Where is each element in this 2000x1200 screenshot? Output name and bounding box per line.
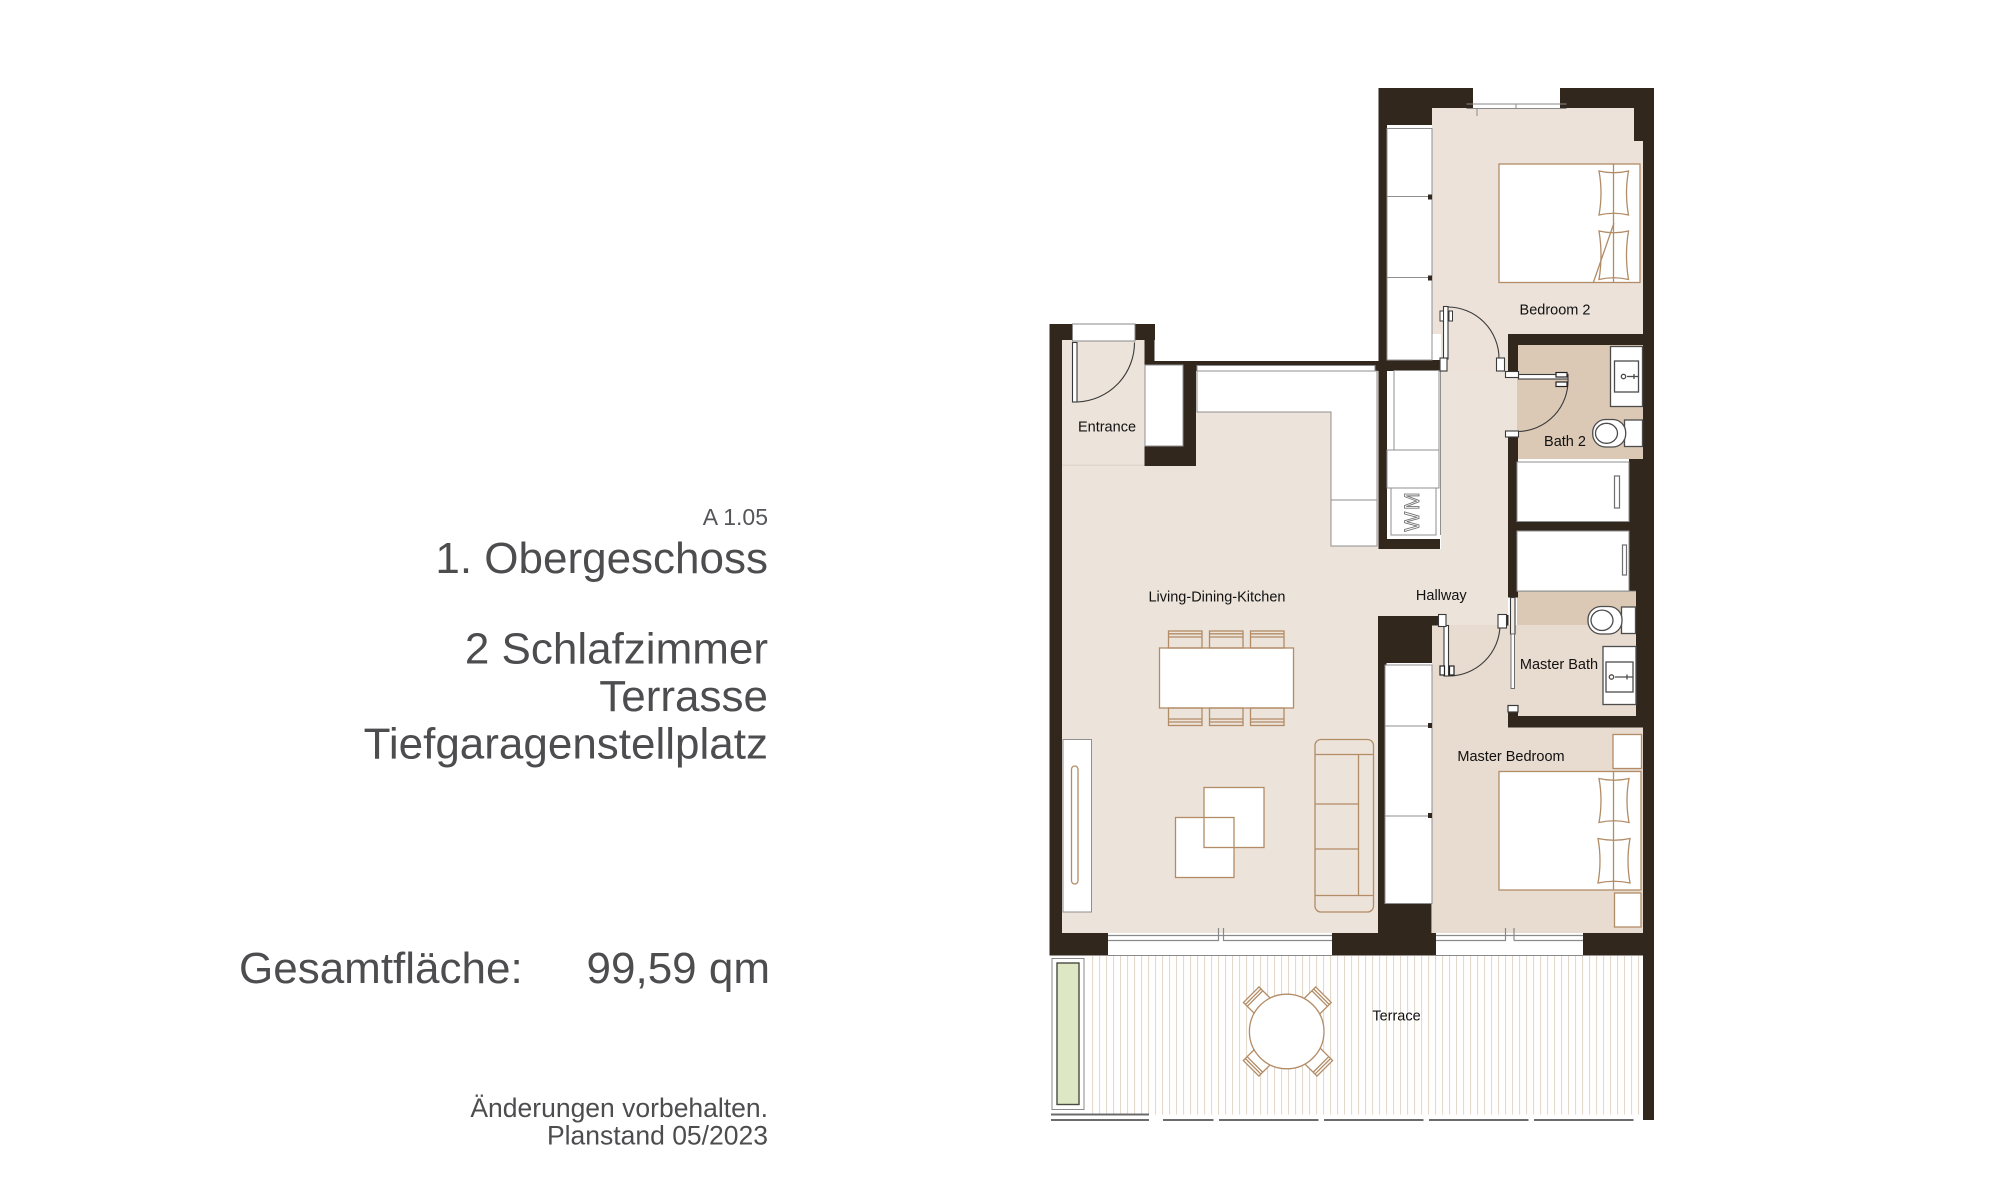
svg-text:Gesamtfläche:: Gesamtfläche: <box>239 944 523 993</box>
svg-text:Hallway: Hallway <box>1416 588 1468 604</box>
svg-text:WM: WM <box>1401 490 1424 531</box>
svg-text:2 Schlafzimmer: 2 Schlafzimmer <box>465 625 768 674</box>
svg-text:Tiefgaragenstellplatz: Tiefgaragenstellplatz <box>364 720 768 769</box>
svg-text:Master Bedroom: Master Bedroom <box>1457 749 1564 765</box>
svg-text:1. Obergeschoss: 1. Obergeschoss <box>435 534 768 583</box>
svg-text:Änderungen vorbehalten.: Änderungen vorbehalten. <box>470 1093 768 1123</box>
svg-text:Bedroom 2: Bedroom 2 <box>1520 303 1591 319</box>
svg-text:Entrance: Entrance <box>1078 420 1136 436</box>
svg-text:Planstand 05/2023: Planstand 05/2023 <box>547 1121 768 1151</box>
svg-text:A 1.05: A 1.05 <box>703 504 768 530</box>
svg-text:Living-Dining-Kitchen: Living-Dining-Kitchen <box>1148 590 1285 606</box>
svg-text:Master Bath: Master Bath <box>1520 657 1598 673</box>
svg-text:Terrace: Terrace <box>1372 1009 1420 1025</box>
svg-text:Terrasse: Terrasse <box>599 672 768 721</box>
svg-text:99,59 qm: 99,59 qm <box>587 944 770 993</box>
svg-text:Bath 2: Bath 2 <box>1544 434 1586 450</box>
